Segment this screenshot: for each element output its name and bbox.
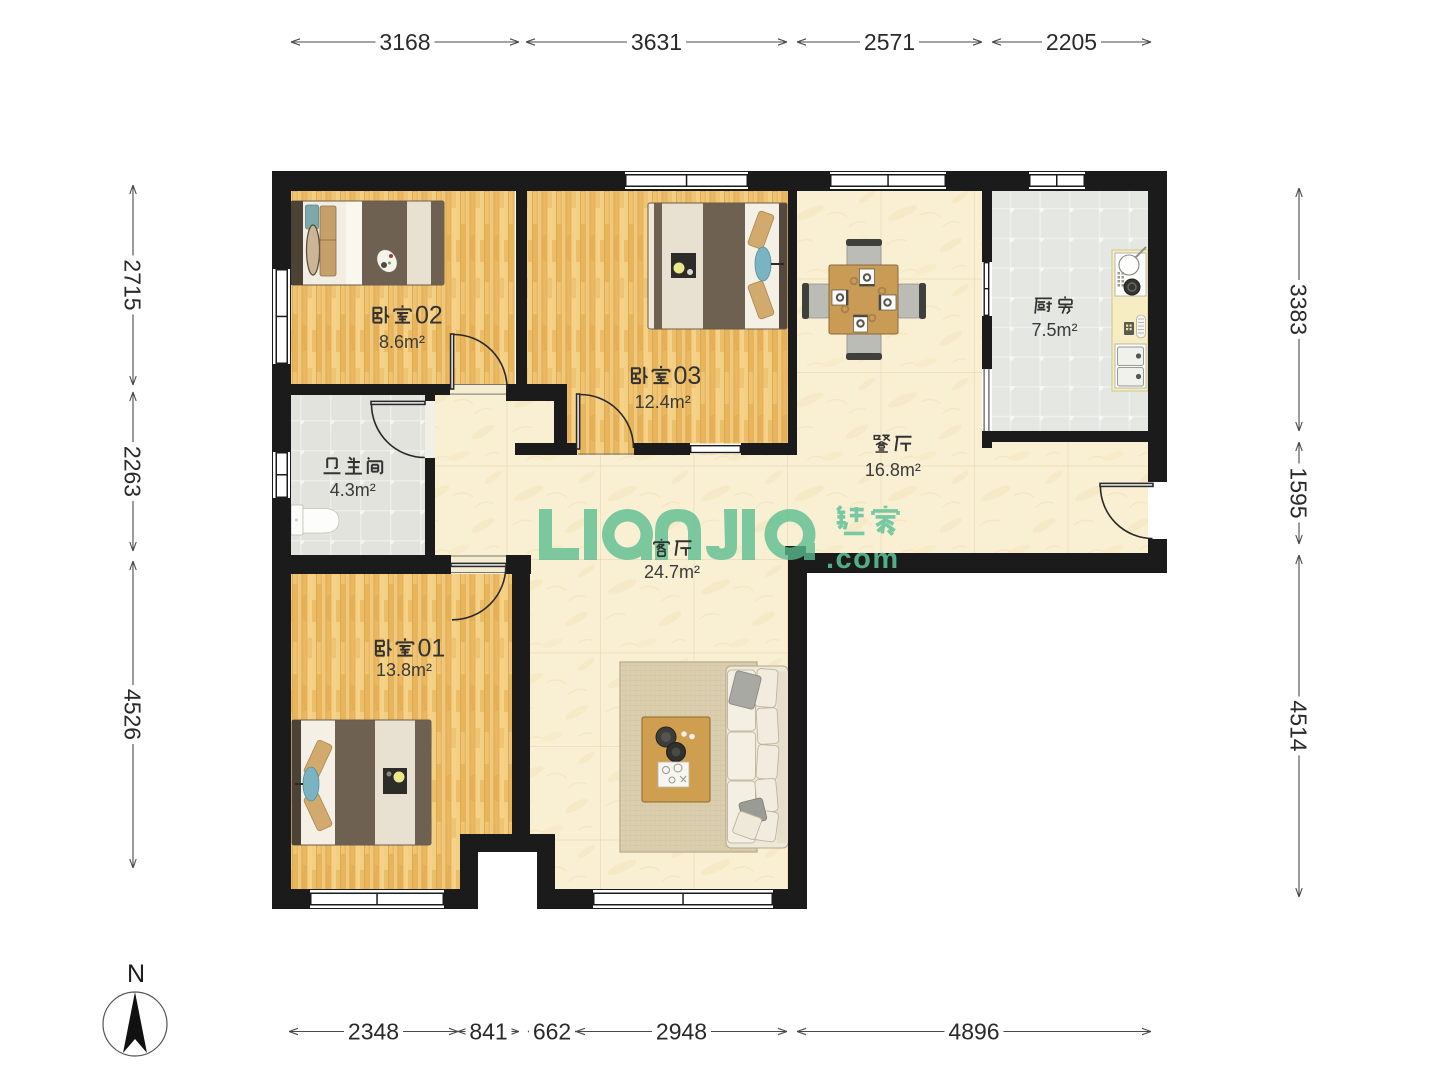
svg-text:2348: 2348 [348, 1019, 399, 1045]
svg-text:.com: .com [826, 543, 900, 575]
svg-text:3383: 3383 [1286, 284, 1312, 335]
svg-text:13.8m²: 13.8m² [376, 660, 432, 680]
svg-text:03: 03 [674, 362, 702, 390]
svg-text:3168: 3168 [379, 29, 430, 55]
svg-text:24.7m²: 24.7m² [644, 562, 700, 582]
svg-text:16.8m²: 16.8m² [865, 460, 921, 480]
svg-text:2715: 2715 [120, 259, 146, 310]
svg-text:12.4m²: 12.4m² [635, 392, 691, 412]
svg-text:2948: 2948 [656, 1019, 707, 1045]
svg-text:2205: 2205 [1046, 29, 1097, 55]
svg-text:4.3m²: 4.3m² [330, 480, 376, 500]
svg-text:2571: 2571 [864, 29, 915, 55]
svg-text:8.6m²: 8.6m² [379, 332, 425, 352]
svg-text:662: 662 [533, 1019, 571, 1045]
svg-text:2263: 2263 [120, 446, 146, 497]
svg-text:4526: 4526 [120, 689, 146, 740]
svg-text:1595: 1595 [1286, 467, 1312, 518]
svg-text:841: 841 [469, 1019, 507, 1045]
svg-text:N: N [127, 960, 145, 988]
svg-text:02: 02 [415, 302, 443, 330]
svg-text:4896: 4896 [948, 1019, 999, 1045]
svg-text:01: 01 [418, 635, 446, 663]
svg-text:3631: 3631 [631, 29, 682, 55]
svg-text:7.5m²: 7.5m² [1031, 320, 1077, 340]
svg-text:4514: 4514 [1286, 700, 1312, 751]
